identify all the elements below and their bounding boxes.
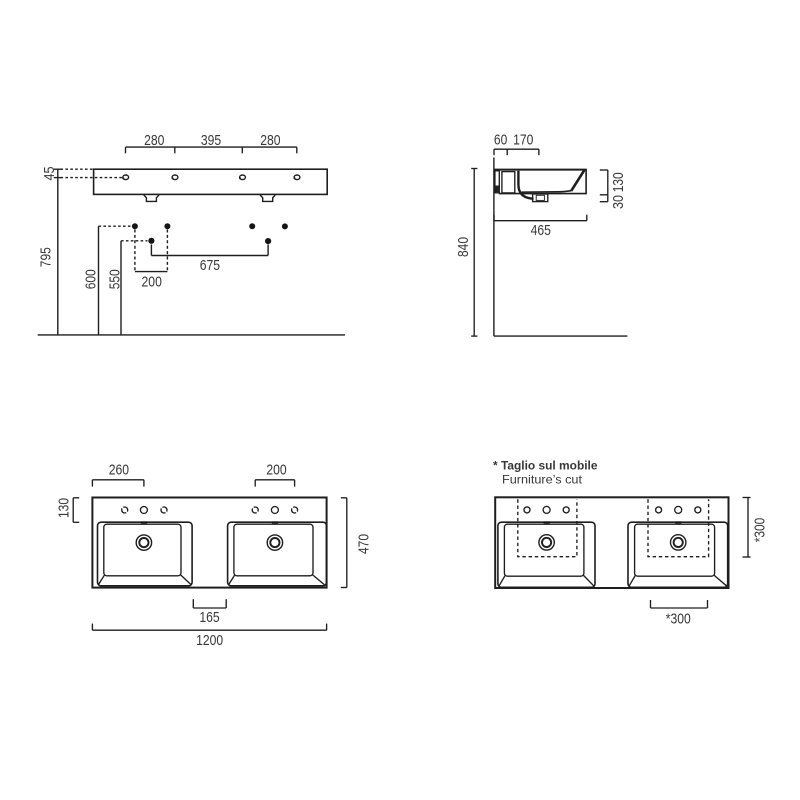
svg-text:550: 550 [107, 269, 123, 289]
svg-text:795: 795 [39, 247, 55, 267]
svg-text:Furniture’s cut: Furniture’s cut [502, 472, 583, 486]
svg-text:200: 200 [142, 274, 162, 290]
svg-text:600: 600 [84, 269, 100, 289]
svg-text:280: 280 [260, 133, 280, 149]
svg-text:130: 130 [57, 498, 73, 518]
svg-text:465: 465 [531, 223, 551, 239]
svg-text:840: 840 [456, 237, 472, 257]
svg-text:*300: *300 [753, 518, 769, 543]
svg-text:395: 395 [201, 133, 221, 149]
svg-text:165: 165 [199, 610, 219, 626]
svg-text:* Taglio sul mobile: * Taglio sul mobile [493, 459, 598, 473]
svg-text:1200: 1200 [196, 633, 223, 649]
svg-text:30: 30 [611, 195, 627, 209]
svg-text:280: 280 [144, 133, 164, 149]
svg-text:260: 260 [109, 463, 129, 479]
svg-text:130: 130 [611, 172, 627, 192]
svg-text:200: 200 [266, 463, 286, 479]
svg-text:675: 675 [200, 258, 220, 274]
svg-text:60: 60 [494, 133, 507, 149]
svg-text:45: 45 [42, 167, 58, 181]
svg-text:470: 470 [356, 534, 372, 554]
svg-text:170: 170 [513, 133, 533, 149]
svg-text:*300: *300 [666, 612, 691, 628]
